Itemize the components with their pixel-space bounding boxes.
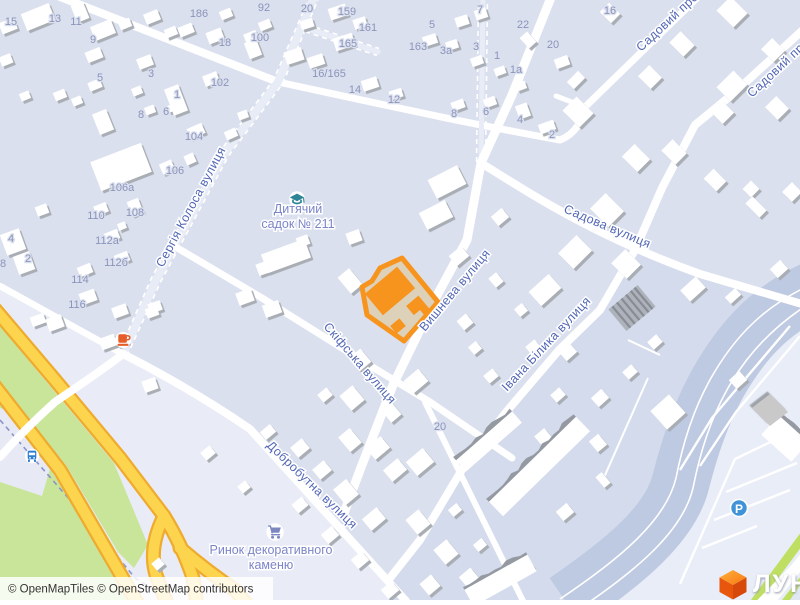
svg-text:16: 16 [604,5,616,17]
svg-text:108: 108 [126,207,144,219]
svg-text:Дитячий: Дитячий [274,202,322,216]
svg-text:92: 92 [258,2,270,14]
svg-text:4: 4 [8,233,14,245]
svg-text:3a: 3a [440,45,453,57]
svg-text:116: 116 [68,299,86,311]
svg-text:114: 114 [71,274,89,286]
svg-text:© OpenMapTiles © OpenStreetMap: © OpenMapTiles © OpenStreetMap contribut… [8,584,254,596]
svg-text:161: 161 [359,22,377,34]
svg-text:садок № 211: садок № 211 [261,217,334,231]
svg-text:P: P [735,502,743,516]
svg-text:163: 163 [409,41,427,53]
svg-text:106: 106 [166,165,184,177]
svg-text:8: 8 [0,258,6,270]
svg-text:186: 186 [190,8,208,20]
svg-text:каменю: каменю [249,558,294,572]
svg-text:7: 7 [477,4,483,16]
svg-text:6: 6 [483,106,489,118]
svg-text:12: 12 [388,94,400,106]
svg-text:4: 4 [517,114,523,126]
svg-text:112б: 112б [104,257,128,269]
svg-text:112a: 112a [95,235,120,247]
svg-text:13: 13 [49,13,61,25]
svg-text:15: 15 [5,16,17,28]
svg-text:14: 14 [349,84,361,96]
svg-text:159: 159 [338,6,356,18]
svg-text:8: 8 [451,108,457,120]
svg-text:5: 5 [429,19,435,31]
svg-text:110: 110 [87,210,105,222]
svg-text:102: 102 [211,77,229,89]
svg-text:18: 18 [219,37,231,49]
svg-text:5: 5 [97,72,103,84]
svg-text:9: 9 [90,34,96,46]
svg-text:1: 1 [174,89,180,101]
svg-text:11: 11 [70,16,81,28]
svg-text:165: 165 [339,38,357,50]
svg-text:100: 100 [251,32,269,44]
svg-text:1: 1 [494,50,500,62]
svg-text:Ринок декоративного: Ринок декоративного [210,543,333,557]
svg-text:8: 8 [138,109,144,121]
svg-text:20: 20 [434,421,446,433]
svg-text:22: 22 [517,19,529,31]
svg-text:20: 20 [547,39,559,51]
svg-text:6: 6 [163,106,169,118]
svg-text:106a: 106a [110,182,135,194]
svg-text:16/165: 16/165 [312,68,346,80]
svg-text:3: 3 [473,41,479,53]
svg-text:1a: 1a [510,64,523,76]
svg-text:2: 2 [25,253,31,265]
svg-text:3: 3 [148,68,154,80]
svg-text:ЛУН: ЛУН [753,570,800,598]
svg-text:2: 2 [549,129,555,141]
svg-text:104: 104 [185,131,203,143]
svg-text:20: 20 [301,3,313,15]
